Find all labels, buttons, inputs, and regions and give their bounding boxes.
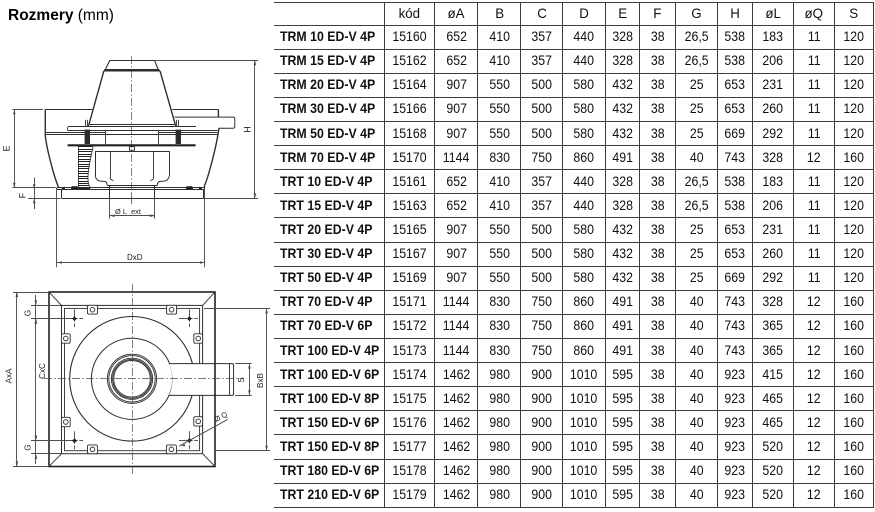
svg-text:S: S bbox=[237, 377, 246, 383]
svg-text:G: G bbox=[24, 444, 33, 450]
svg-text:E: E bbox=[2, 145, 12, 151]
svg-text:G: G bbox=[24, 310, 33, 316]
svg-text:Ø L ext: Ø L ext bbox=[115, 207, 141, 216]
svg-text:AxA: AxA bbox=[5, 368, 14, 384]
svg-text:CxC: CxC bbox=[38, 363, 47, 379]
svg-text:DxD: DxD bbox=[127, 253, 143, 262]
svg-text:F: F bbox=[17, 192, 27, 198]
svg-text:BxB: BxB bbox=[256, 372, 265, 388]
svg-text:H: H bbox=[242, 126, 252, 133]
